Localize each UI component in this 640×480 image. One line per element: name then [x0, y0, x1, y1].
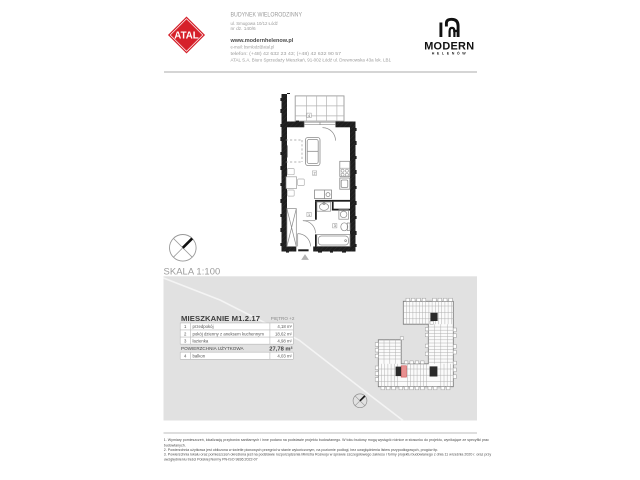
svg-text:ul. Smugowa 10/12 Łódź: ul. Smugowa 10/12 Łódź	[231, 21, 278, 26]
svg-text:2: 2	[314, 172, 316, 176]
svg-text:4,98 m²: 4,98 m²	[277, 338, 292, 343]
svg-text:27,78 m²: 27,78 m²	[269, 345, 292, 352]
svg-text:www.modernhelenow.pl: www.modernhelenow.pl	[229, 38, 293, 44]
svg-text:uwzględnieniu treści Polskiej: uwzględnieniu treści Polskiej Normy PN-I…	[164, 457, 258, 461]
svg-text:telefon: (+48) 42 632 23 43; (: telefon: (+48) 42 632 23 43; (+48) 42 63…	[231, 51, 342, 56]
svg-text:MODERN: MODERN	[424, 40, 474, 52]
svg-text:HELENÓW: HELENÓW	[432, 51, 469, 56]
svg-text:4: 4	[308, 114, 310, 118]
svg-text:SKALA 1:100: SKALA 1:100	[164, 266, 221, 277]
svg-text:ATAL S.A. Biuro Sprzedaży Mies: ATAL S.A. Biuro Sprzedaży Mieszkań, 91-0…	[231, 57, 392, 62]
svg-text:3. Powierzchnia lokalu oraz po: 3. Powierzchnia lokalu oraz pomieszczeń …	[164, 453, 492, 457]
svg-text:BUDYNEK WIELORODZINNY: BUDYNEK WIELORODZINNY	[231, 11, 303, 18]
svg-text:nr dz. 140/6: nr dz. 140/6	[231, 26, 257, 31]
svg-text:budowlanych.: budowlanych.	[164, 443, 186, 447]
svg-text:18,62 m²: 18,62 m²	[275, 331, 293, 336]
svg-text:MIESZKANIE M1.2.17: MIESZKANIE M1.2.17	[181, 314, 260, 323]
svg-text:2. Powierzchnia użytkowa jest: 2. Powierzchnia użytkowa jest obliczona …	[164, 448, 438, 452]
svg-text:3: 3	[334, 224, 336, 228]
svg-text:pokój dzienny z aneksem kuchen: pokój dzienny z aneksem kuchennym	[193, 331, 265, 336]
svg-text:4,03 m²: 4,03 m²	[277, 354, 292, 359]
svg-text:e-mail: bsmlodz@atal.pl: e-mail: bsmlodz@atal.pl	[231, 44, 275, 49]
svg-text:łazienka: łazienka	[193, 338, 209, 343]
svg-text:przedpokój: przedpokój	[193, 324, 214, 329]
svg-text:1. Wymiary pomieszczeń, lokali: 1. Wymiary pomieszczeń, lokalizację przy…	[164, 438, 489, 442]
svg-text:PIĘTRO +2: PIĘTRO +2	[271, 316, 295, 321]
svg-text:1: 1	[308, 213, 310, 217]
svg-text:POWIERZCHNIA UŻYTKOWA: POWIERZCHNIA UŻYTKOWA	[181, 345, 245, 351]
svg-text:balkon: balkon	[193, 354, 206, 359]
svg-text:ATAL: ATAL	[174, 30, 198, 41]
svg-text:4,18 m²: 4,18 m²	[277, 324, 292, 329]
